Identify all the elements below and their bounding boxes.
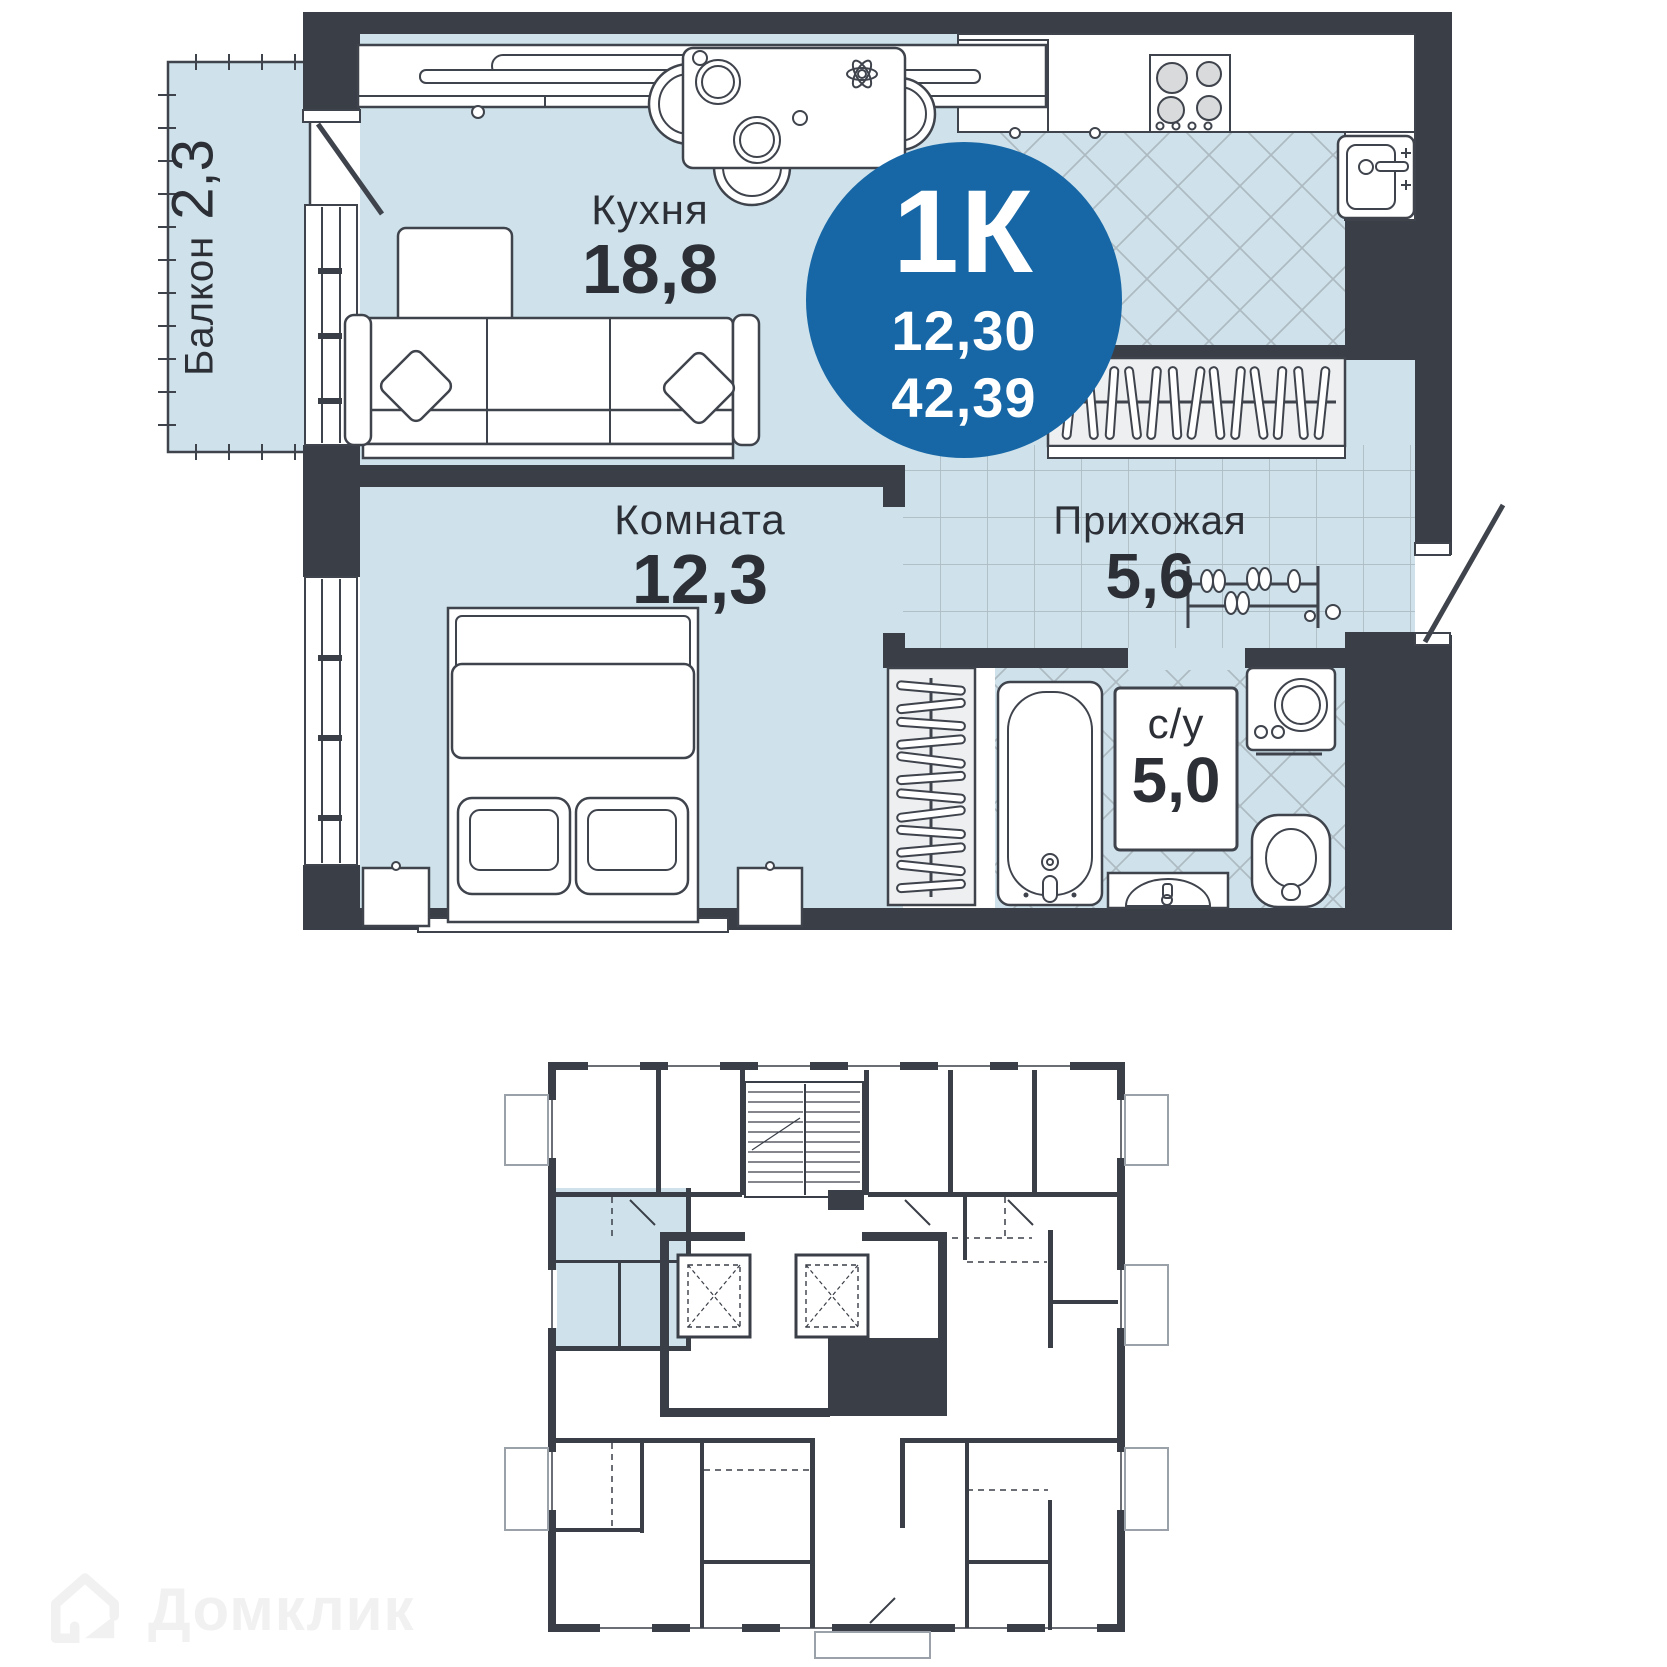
- bathroom-sink: [1108, 873, 1228, 908]
- nightstand: [363, 862, 429, 926]
- bathroom-label-mat: [1115, 688, 1237, 850]
- apartment-plan: ❄: [158, 12, 1503, 932]
- domklik-house-icon: [42, 1566, 128, 1652]
- kitchen-sink: [1338, 136, 1414, 218]
- nightstand: [738, 862, 802, 926]
- watermark: Домклик: [42, 1566, 415, 1652]
- badge-living-area: 12,30: [891, 297, 1036, 364]
- elevator-crossed-box-icon: [796, 1255, 868, 1337]
- bathtub: [998, 682, 1102, 905]
- stove-icon: [1150, 55, 1230, 132]
- washing-machine-icon: [1247, 668, 1335, 754]
- apartment-badge: 1К 12,30 42,39: [806, 142, 1122, 458]
- bathroom-doorway: [1128, 648, 1245, 670]
- balcony: [158, 54, 310, 460]
- badge-rooms-label: 1К: [893, 173, 1035, 291]
- watermark-brand: Домклик: [148, 1575, 415, 1644]
- toilet-icon: [1252, 815, 1330, 907]
- floorplan-page: ❄: [0, 0, 1667, 1667]
- entrance-porch: [815, 1632, 930, 1658]
- closet: [888, 668, 975, 905]
- sofa: [345, 315, 759, 458]
- badge-total-area: 42,39: [891, 364, 1036, 431]
- bed: [418, 608, 728, 932]
- stairs: [745, 1082, 863, 1197]
- elevator-crossed-box-icon: [678, 1255, 750, 1337]
- bedroom-window: [305, 577, 357, 865]
- overview-plan: [505, 1061, 1168, 1658]
- elevator-core: [660, 1232, 947, 1417]
